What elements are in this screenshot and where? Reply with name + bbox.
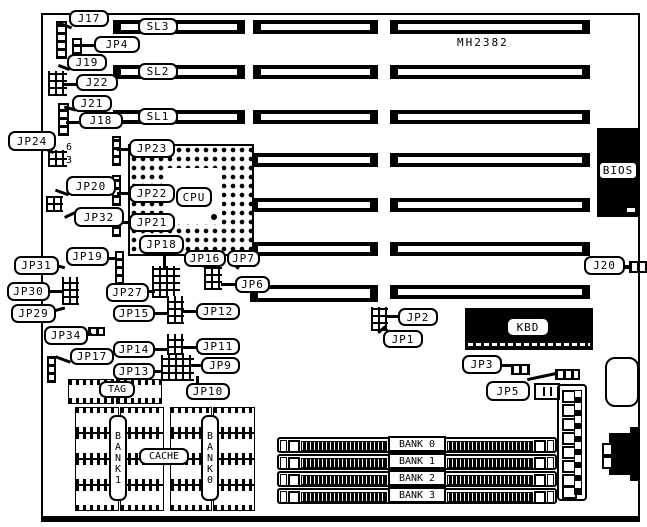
- jumper-jp16-jp6: [204, 267, 222, 290]
- isa-slot-1-seg-2: [253, 20, 378, 34]
- leader-line: [48, 290, 63, 293]
- leader-line: [163, 252, 166, 268]
- isa-slot-3-seg-1: [113, 110, 245, 124]
- kbd-chip-label: KBD: [506, 317, 550, 337]
- bios-chip-label: BIOS: [598, 161, 638, 180]
- callout-j18: J18: [79, 112, 123, 129]
- callout-jp27: JP27: [106, 283, 149, 302]
- din-notch: [602, 456, 613, 469]
- model-number: MH2382: [457, 36, 509, 49]
- callout-j19: J19: [67, 54, 107, 71]
- callout-jp13: JP13: [113, 363, 155, 380]
- callout-jp29: JP29: [11, 304, 56, 323]
- isa-slot-3-seg-3: [390, 110, 590, 124]
- isa-slot-1-seg-1: [113, 20, 245, 34]
- pin-number-6: 6: [66, 142, 72, 153]
- isa-slot-7-seg-2: [390, 285, 590, 299]
- small-component: [534, 383, 560, 400]
- jumper-jp31-jp30-jp29: [62, 277, 79, 305]
- cpu-label: CPU: [176, 187, 212, 207]
- callout-jp11: JP11: [196, 338, 240, 355]
- callout-jp15: JP15: [113, 305, 155, 322]
- isa-slot-4-seg-2: [390, 153, 590, 167]
- callout-jp31: JP31: [14, 256, 59, 275]
- callout-jp12: JP12: [196, 303, 240, 320]
- jumper-jp18-jp27: [152, 266, 180, 298]
- isa-slot-4-seg-1: [250, 153, 378, 167]
- tag-label: TAG: [99, 381, 135, 398]
- bank0-label: BANK0: [201, 415, 219, 501]
- callout-j17: J17: [69, 10, 109, 27]
- motherboard-diagram: MH2382 SL3 SL2 SL1 CPU 6 3: [0, 0, 647, 527]
- cache-chip: [213, 459, 255, 485]
- simm-slot-bank-1: BANK 1: [277, 454, 557, 470]
- isa-slot-5-seg-2: [390, 198, 590, 212]
- simm-label-bank-1: BANK 1: [388, 453, 446, 469]
- callout-jp18: JP18: [139, 235, 184, 254]
- isa-slot-2-seg-2: [253, 65, 378, 79]
- power-connector: [557, 384, 587, 501]
- callout-jp23: JP23: [129, 139, 175, 158]
- callout-j21: J21: [72, 95, 112, 112]
- slot-label-sl1: SL1: [138, 108, 178, 125]
- callout-jp7: JP7: [227, 250, 260, 267]
- callout-jp24: JP24: [8, 131, 56, 151]
- simm-label-bank-0: BANK 0: [388, 436, 446, 452]
- cache-chip: [213, 433, 255, 459]
- cache-label: CACHE: [139, 448, 189, 465]
- isa-slot-2-seg-1: [113, 65, 245, 79]
- callout-jp3: JP3: [462, 355, 502, 374]
- callout-jp22: JP22: [129, 184, 175, 203]
- callout-jp1: JP1: [383, 330, 423, 348]
- simm-slot-bank-3: BANK 3: [277, 488, 557, 504]
- isa-slot-6-seg-1: [250, 242, 378, 256]
- pin-number-3: 3: [66, 155, 72, 166]
- simm-label-bank-3: BANK 3: [388, 487, 446, 503]
- slot-label-sl2: SL2: [138, 63, 178, 80]
- isa-slot-6-seg-2: [390, 242, 590, 256]
- jumper-jp20-jp32: [46, 196, 63, 212]
- bank1-label: BANK1: [109, 415, 127, 501]
- callout-jp10: JP10: [186, 383, 230, 400]
- leader-line: [221, 283, 236, 286]
- header-jp23: [112, 136, 121, 166]
- cache-chip: [213, 407, 255, 433]
- keyboard-din-connector-base: [630, 427, 640, 481]
- callout-jp21: JP21: [129, 213, 175, 232]
- isa-slot-5-seg-1: [250, 198, 378, 212]
- bios-chip-notch: [627, 208, 635, 212]
- callout-jp6: JP6: [235, 276, 270, 293]
- callout-jp19: JP19: [66, 247, 109, 266]
- callout-j20: J20: [584, 256, 625, 275]
- kbd-chip-pins: [468, 343, 590, 346]
- jumper-jp5: [555, 369, 580, 380]
- callout-jp9: JP9: [201, 357, 240, 374]
- callout-jp17: JP17: [70, 348, 114, 365]
- isa-slot-3-seg-2: [253, 110, 378, 124]
- jumper-jp3: [511, 364, 530, 375]
- callout-jp14: JP14: [113, 341, 155, 358]
- leader-line: [153, 312, 169, 315]
- simm-slot-bank-0: BANK 0: [277, 437, 557, 453]
- callout-jp20: JP20: [66, 176, 116, 196]
- simm-label-bank-2: BANK 2: [388, 470, 446, 486]
- callout-jp2: JP2: [398, 308, 438, 326]
- header-jp17: [47, 356, 56, 383]
- cache-chip: [213, 485, 255, 511]
- callout-jp30: JP30: [7, 282, 50, 301]
- leader-line: [153, 348, 169, 351]
- callout-jp5: JP5: [486, 381, 530, 401]
- callout-jp32: JP32: [74, 207, 124, 227]
- jumper-jp13-jp9-jp10: [161, 355, 194, 381]
- din-notch: [602, 443, 613, 456]
- battery-outline: [605, 357, 639, 407]
- callout-jp4: JP4: [94, 36, 140, 53]
- callout-j22: J22: [76, 74, 118, 91]
- isa-slot-1-seg-3: [390, 20, 590, 34]
- callout-jp34: JP34: [44, 326, 88, 345]
- slot-label-sl3: SL3: [138, 18, 178, 35]
- cpu-pin1-dot: [211, 214, 217, 220]
- callout-jp16: JP16: [184, 250, 226, 267]
- simm-slot-bank-2: BANK 2: [277, 471, 557, 487]
- isa-slot-2-seg-3: [390, 65, 590, 79]
